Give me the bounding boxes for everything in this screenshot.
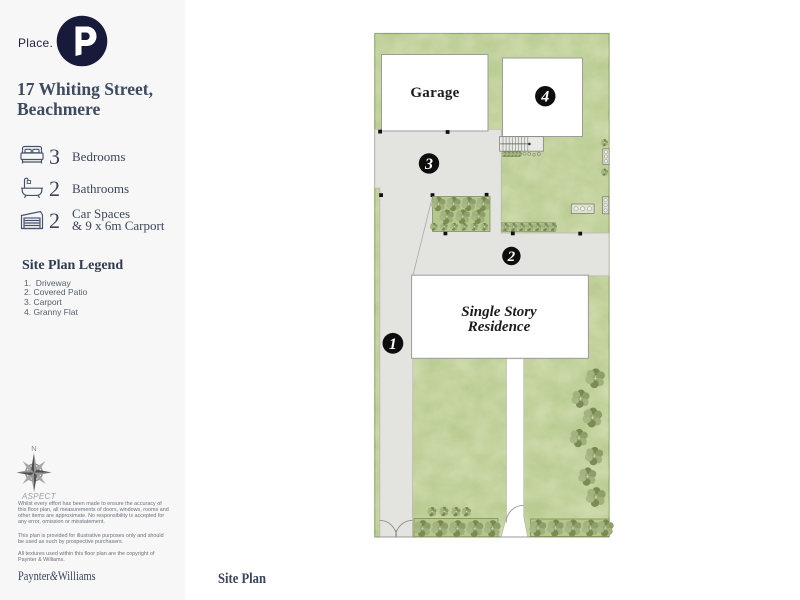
svg-text:Garage: Garage [410, 85, 459, 101]
svg-text:3: 3 [424, 156, 433, 173]
svg-text:1: 1 [389, 336, 397, 353]
svg-text:4: 4 [540, 89, 549, 106]
svg-text:Single Story: Single Story [461, 304, 537, 320]
svg-text:2: 2 [507, 249, 516, 265]
svg-text:Residence: Residence [467, 319, 531, 335]
